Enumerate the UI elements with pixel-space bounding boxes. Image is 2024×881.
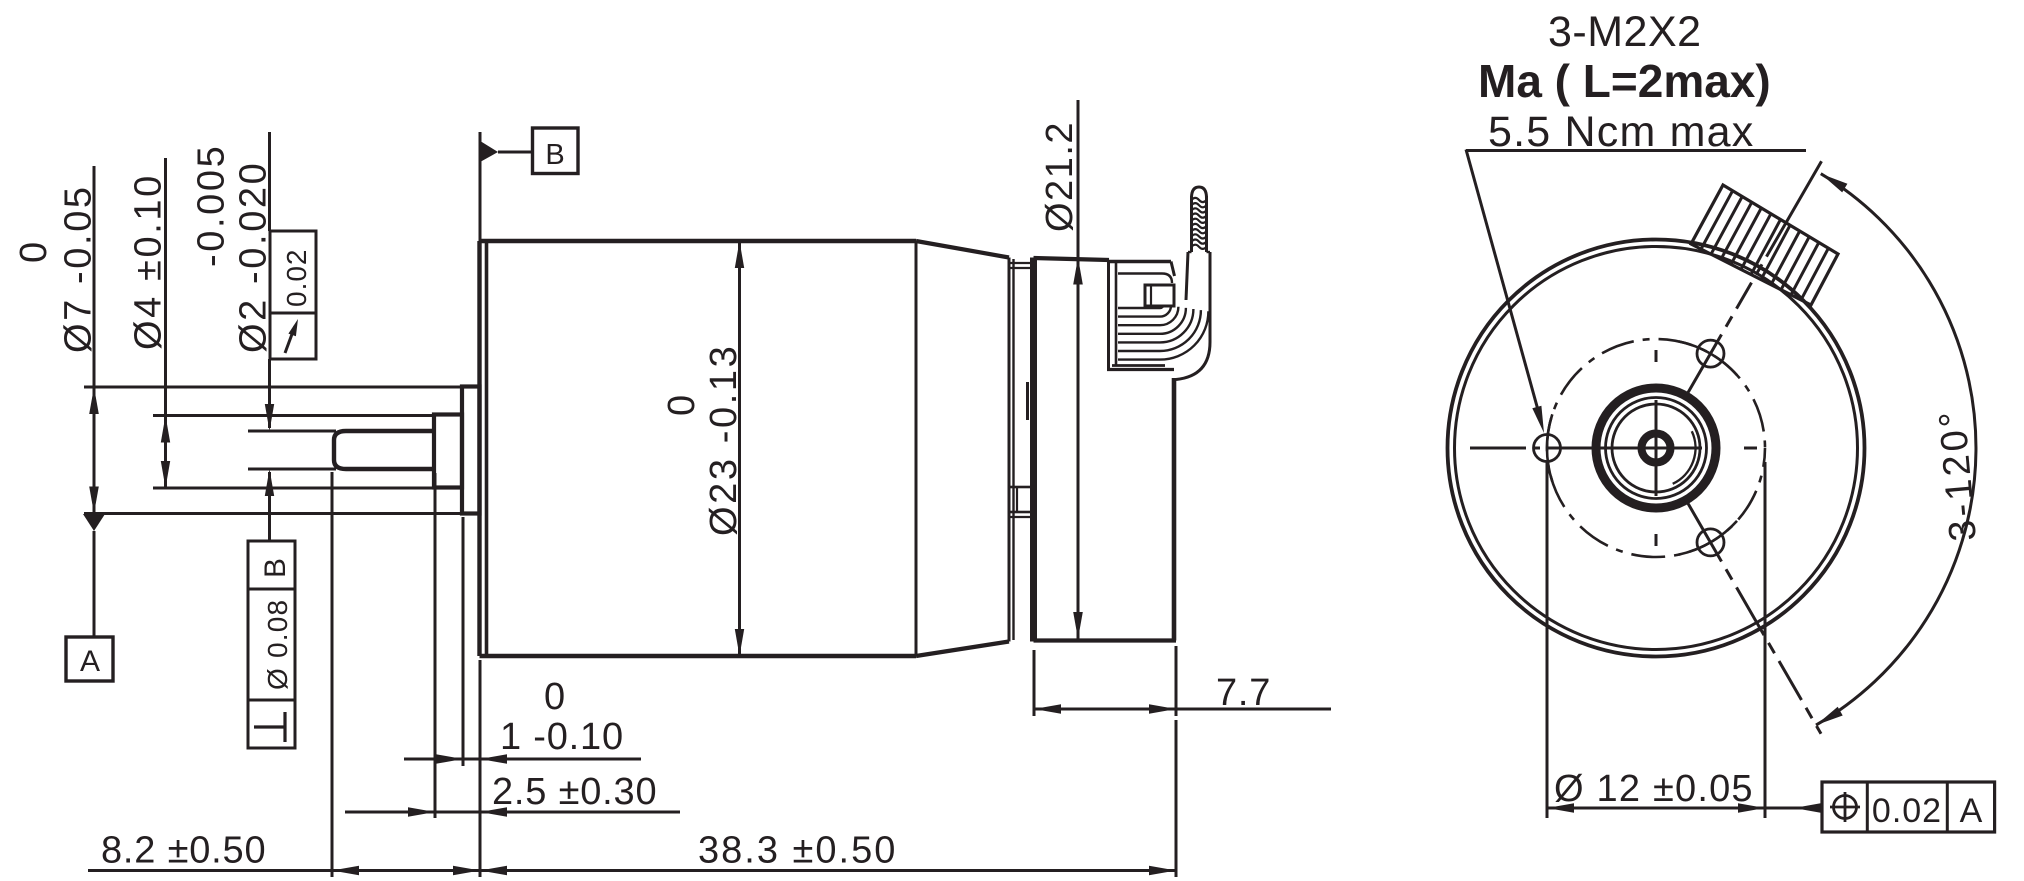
- svg-text:7.7: 7.7: [1216, 672, 1271, 714]
- svg-text:3-M2X2: 3-M2X2: [1548, 8, 1702, 56]
- svg-text:Ø4 ±0.10: Ø4 ±0.10: [128, 173, 170, 350]
- svg-text:Ø 0.08: Ø 0.08: [262, 599, 293, 690]
- svg-text:1 -0.10: 1 -0.10: [500, 716, 624, 758]
- svg-text:Ø7 -0.05: Ø7 -0.05: [58, 184, 100, 353]
- svg-text:B: B: [259, 558, 292, 578]
- svg-text:8.2 ±0.50: 8.2 ±0.50: [101, 830, 266, 872]
- svg-text:5.5 Ncm max: 5.5 Ncm max: [1488, 108, 1754, 156]
- svg-text:Ø 12 ±0.05: Ø 12 ±0.05: [1554, 768, 1754, 810]
- svg-text:Ø21.2: Ø21.2: [1039, 121, 1081, 232]
- svg-text:Ø23 -0.13: Ø23 -0.13: [703, 344, 745, 536]
- svg-text:B: B: [545, 139, 564, 171]
- svg-text:0: 0: [13, 239, 55, 263]
- svg-text:2.5 ±0.30: 2.5 ±0.30: [492, 771, 657, 813]
- svg-text:Ø2 -0.020: Ø2 -0.020: [233, 161, 275, 353]
- svg-text:38.3 ±0.50: 38.3 ±0.50: [698, 830, 897, 872]
- svg-text:0: 0: [544, 676, 566, 718]
- svg-text:-0.005: -0.005: [191, 144, 233, 267]
- svg-text:A: A: [80, 645, 100, 678]
- svg-text:0.02: 0.02: [281, 249, 312, 308]
- svg-text:A: A: [1960, 792, 1983, 830]
- svg-text:Ma ( L=2max): Ma ( L=2max): [1478, 55, 1771, 107]
- svg-text:0: 0: [661, 392, 703, 416]
- svg-text:0.02: 0.02: [1872, 792, 1942, 830]
